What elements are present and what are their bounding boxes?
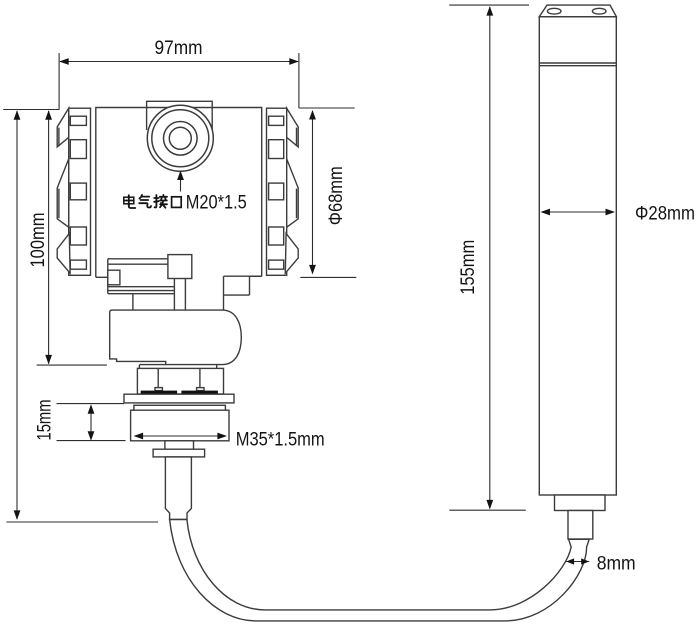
- svg-text:15mm: 15mm: [35, 400, 56, 441]
- svg-text:M35*1.5mm: M35*1.5mm: [236, 430, 325, 451]
- svg-text:M20*1.5: M20*1.5: [186, 193, 247, 214]
- svg-text:155mm: 155mm: [458, 240, 479, 295]
- svg-text:8mm: 8mm: [597, 554, 636, 575]
- svg-text:100mm: 100mm: [28, 213, 49, 268]
- svg-text:97mm: 97mm: [155, 38, 203, 59]
- svg-text:Φ28mm: Φ28mm: [635, 203, 695, 225]
- svg-text:Φ68mm: Φ68mm: [326, 166, 347, 225]
